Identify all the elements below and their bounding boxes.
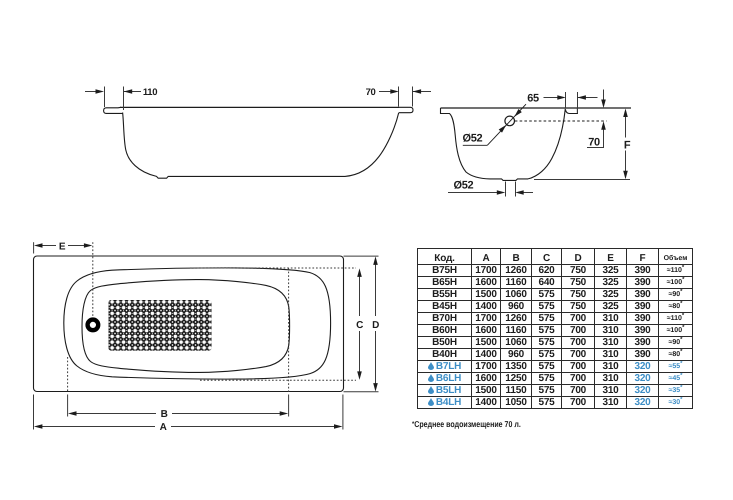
svg-text:E: E <box>59 242 66 253</box>
svg-text:F: F <box>624 139 631 151</box>
svg-text:C: C <box>356 320 363 331</box>
svg-text:B: B <box>161 409 168 420</box>
svg-text:110: 110 <box>143 87 157 98</box>
svg-text:D: D <box>372 320 379 331</box>
svg-text:A: A <box>160 422 167 433</box>
svg-text:70: 70 <box>588 136 600 148</box>
svg-text:70: 70 <box>366 87 376 98</box>
svg-text:Ø52: Ø52 <box>454 179 474 191</box>
svg-text:Ø52: Ø52 <box>463 133 483 145</box>
svg-text:65: 65 <box>527 93 539 105</box>
